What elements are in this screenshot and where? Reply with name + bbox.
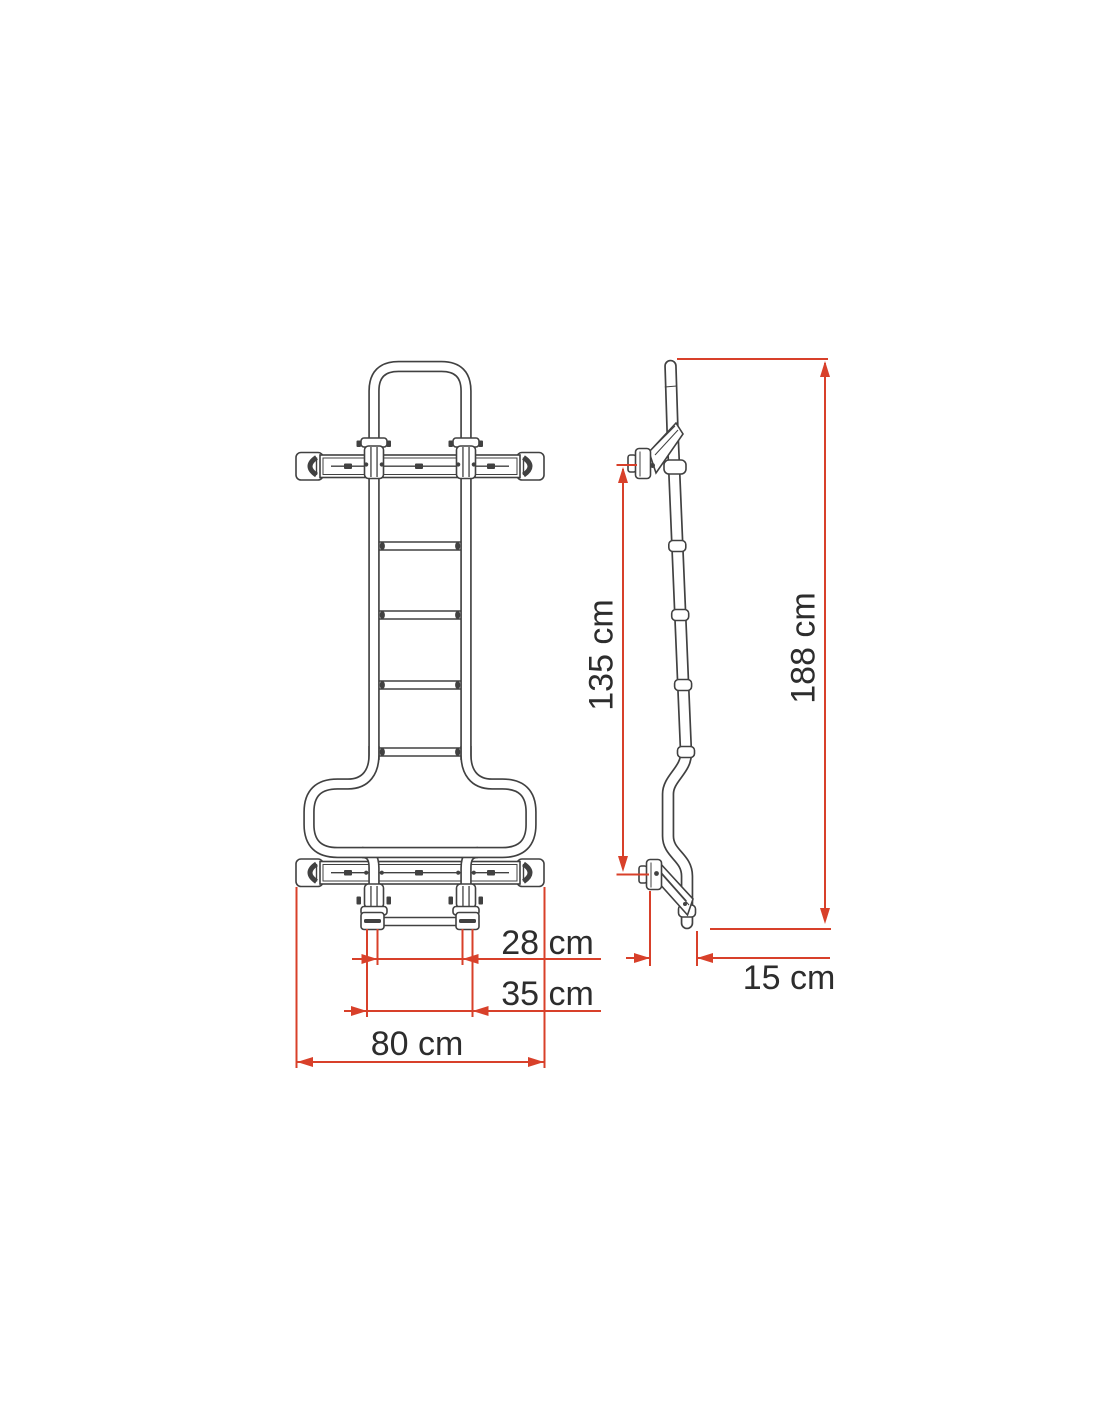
front-view bbox=[296, 367, 544, 930]
ladder-technical-diagram: 28 cm 35 cm 80 cm 135 cm 188 cm 15 cm bbox=[0, 0, 1100, 1422]
dim-label-35cm: 35 cm bbox=[501, 975, 594, 1013]
wide-support-loop bbox=[309, 746, 531, 853]
rung-end-fittings bbox=[380, 542, 461, 756]
wall-plate bbox=[636, 449, 651, 479]
bracket-screw bbox=[654, 871, 659, 876]
diagram-canvas: 28 cm 35 cm 80 cm 135 cm 188 cm 15 cm bbox=[0, 0, 1100, 1422]
dimension-labels: 28 cm 35 cm 80 cm 135 cm 188 cm 15 cm bbox=[371, 592, 836, 1063]
dim-label-15cm: 15 cm bbox=[743, 959, 836, 997]
bottom-rung bbox=[361, 913, 479, 930]
dim-label-80cm: 80 cm bbox=[371, 1025, 464, 1063]
bottom-rail-sleeves bbox=[357, 884, 484, 915]
dim-label-188cm: 188 cm bbox=[785, 592, 823, 704]
bracket-screw bbox=[683, 902, 687, 906]
ladder-rungs bbox=[376, 546, 464, 752]
dim-label-135cm: 135 cm bbox=[583, 599, 621, 711]
dim-label-28cm: 28 cm bbox=[501, 924, 594, 962]
top-mounting-bar bbox=[296, 453, 544, 481]
bracket-screw bbox=[650, 463, 655, 468]
bottom-mounting-bar bbox=[296, 859, 544, 887]
tube-clamp bbox=[664, 460, 686, 474]
dim-135cm bbox=[617, 465, 650, 875]
side-view bbox=[628, 366, 696, 923]
